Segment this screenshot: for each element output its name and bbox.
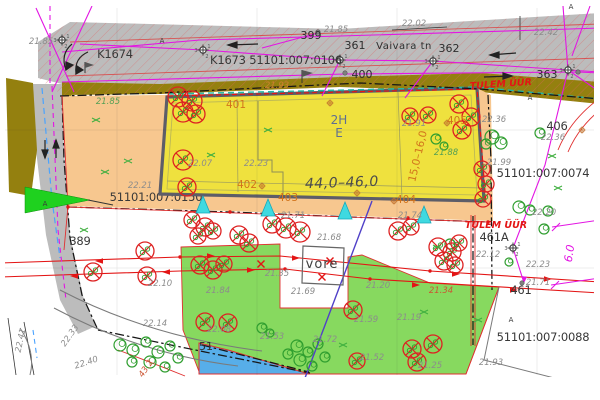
map-label: 21.74 <box>398 211 422 221</box>
svg-text:2: 2 <box>570 74 573 80</box>
svg-text:1: 1 <box>207 44 210 50</box>
map-label: 22.23 <box>526 260 550 270</box>
line-node <box>428 269 431 272</box>
address-362: 362 <box>439 42 460 55</box>
svg-text:3: 3 <box>504 246 507 252</box>
cadastral-number-0106: K1673 51101:007:0106 <box>210 53 342 67</box>
address-389: 389 <box>69 234 90 248</box>
svg-text:1: 1 <box>344 54 347 60</box>
address-361: 361 <box>345 39 366 52</box>
map-label: A <box>43 200 48 208</box>
building-use: E <box>335 126 343 140</box>
svg-text:1: 1 <box>437 55 440 61</box>
svg-text:2: 2 <box>205 54 208 60</box>
line-node <box>66 205 69 208</box>
map-label: A <box>528 94 533 102</box>
map-label: 22.36 <box>482 115 507 125</box>
map-label: 51 <box>199 340 213 353</box>
map-label: 21.88 <box>434 148 459 158</box>
line-node <box>178 255 181 258</box>
svg-text:2: 2 <box>515 252 518 258</box>
map-label: 21.93 <box>265 81 289 91</box>
map-label: 21.72 <box>313 335 337 345</box>
address-363: 363 <box>537 68 558 81</box>
map-label: 21.59 <box>354 315 378 325</box>
site-plan-map: 51101:007:0150 <box>0 0 600 400</box>
plan-canvas: 51101:007:0150 <box>0 0 600 400</box>
building-point-402: 402 <box>237 179 257 191</box>
map-label: 21.84 <box>206 286 230 296</box>
map-label: 22.23 <box>244 159 268 169</box>
address-399: 399 <box>301 29 322 42</box>
map-label: 21.53 <box>260 332 284 342</box>
map-label: 21.20 <box>366 281 390 291</box>
svg-text:2: 2 <box>435 65 438 71</box>
svg-text:3: 3 <box>559 68 562 74</box>
map-label: 22.21 <box>128 181 152 191</box>
map-label: 21.52 <box>360 353 384 363</box>
map-label: 21.35 <box>265 269 289 279</box>
map-label: 22.42 <box>534 28 558 38</box>
map-label: 21.19 <box>397 313 421 323</box>
svg-text:2: 2 <box>342 64 345 70</box>
grate-label: vore <box>306 257 339 272</box>
dimension-6-0: 6.0 <box>562 244 578 263</box>
map-label: 22.08 <box>207 325 232 335</box>
svg-text:3: 3 <box>53 38 56 44</box>
map-label: 21.69 <box>291 287 315 297</box>
svg-text:1: 1 <box>66 34 69 40</box>
map-label: 21.85 <box>324 25 348 35</box>
verge-left <box>6 78 37 196</box>
map-label: 22.07 <box>188 159 213 169</box>
map-label: 21.71 <box>281 211 305 221</box>
map-label: A <box>509 316 514 324</box>
address-461a: 461A <box>479 230 508 244</box>
map-label: 21.68 <box>317 233 342 243</box>
address-461: 461 <box>510 283 531 297</box>
street-name: Vaivara tn <box>376 41 432 52</box>
map-label: A <box>569 3 574 11</box>
map-label: 21.25 <box>418 361 442 371</box>
map-label: 21.91 <box>402 119 426 129</box>
benchmark-point <box>343 71 347 75</box>
map-label: 22.36 <box>541 133 566 143</box>
map-label: 22.14 <box>143 319 167 329</box>
map-label: 22.02 <box>402 19 426 29</box>
map-label: 21.85 <box>29 37 53 47</box>
map-label: 21.34 <box>429 286 453 296</box>
svg-text:1: 1 <box>572 64 575 70</box>
building-point-401: 401 <box>226 99 246 111</box>
building-point-404: 404 <box>396 194 416 206</box>
building-dimension-length: 44,0–46,0 <box>305 174 379 193</box>
map-label: 22.12 <box>476 250 500 260</box>
line-node <box>228 210 231 213</box>
svg-text:3: 3 <box>424 59 427 65</box>
building-storeys: 2H <box>331 113 348 127</box>
building-point-405: 405 <box>447 115 467 127</box>
map-label: 22.20 <box>532 208 556 218</box>
svg-text:1: 1 <box>517 242 520 248</box>
address-406: 406 <box>546 119 567 133</box>
svg-text:3: 3 <box>194 48 197 54</box>
map-label: A <box>160 37 165 45</box>
map-label: 21.93 <box>479 358 503 368</box>
benchmark-point <box>576 70 580 74</box>
cadastral-number-0074: 51101:007:0074 <box>497 166 590 180</box>
cadastral-number-0088: 51101:007:0088 <box>497 330 590 344</box>
map-label: 21.85 <box>96 97 120 107</box>
label-k1674: K1674 <box>97 47 133 61</box>
svg-text:2: 2 <box>64 44 67 50</box>
building-point-403: 403 <box>278 192 298 204</box>
map-label: 22.10 <box>148 279 172 289</box>
address-400: 400 <box>352 68 373 81</box>
